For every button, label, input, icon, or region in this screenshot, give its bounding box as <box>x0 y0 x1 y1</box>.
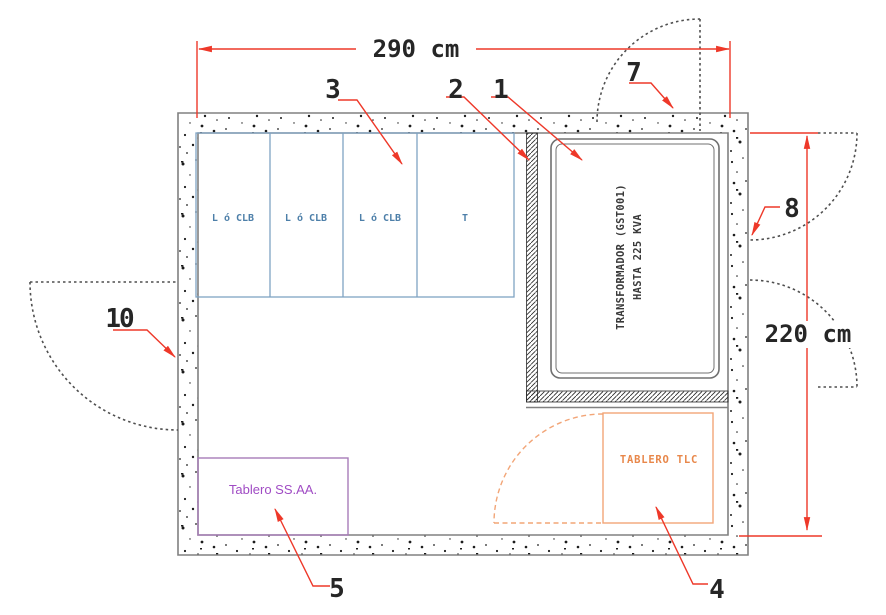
left-door-swing-arc <box>30 282 178 430</box>
callout-1: 1 <box>493 75 508 105</box>
transformer-label-line1: TRANSFORMADOR (GST001) <box>615 184 627 330</box>
hatched-partition-vertical <box>527 133 538 402</box>
transformer-bay: TRANSFORMADOR (GST001) HASTA 225 KVA <box>526 133 728 408</box>
right-door-top-swing-arc <box>750 133 857 240</box>
callout-8: 8 <box>784 194 799 224</box>
leader-10 <box>113 330 175 357</box>
cell-label-1: L ó CLB <box>212 212 254 224</box>
transformer-label-line2: HASTA 225 KVA <box>632 214 644 300</box>
leader-8 <box>752 207 780 235</box>
tlc-door-swing-arc <box>494 414 603 523</box>
dim-width-label: 290 cm <box>373 35 460 63</box>
dim-height-label: 220 cm <box>765 320 852 348</box>
callout-2: 2 <box>448 75 462 105</box>
floor-plan-drawing: L ó CLB L ó CLB L ó CLB T TRANSFORMADOR … <box>0 0 886 615</box>
tablero-ssaa-panel: Tablero SS.AA. <box>198 458 348 535</box>
cell-label-4: T <box>462 213 468 224</box>
callout-3: 3 <box>325 75 339 105</box>
tablero-tlc-panel: TABLERO TLC <box>494 413 713 523</box>
callout-4: 4 <box>709 575 724 605</box>
floor-plan-page: L ó CLB L ó CLB L ó CLB T TRANSFORMADOR … <box>0 0 886 615</box>
callout-10: 10 <box>105 304 134 334</box>
callout-7: 7 <box>626 58 640 88</box>
switchgear-cells: L ó CLB L ó CLB L ó CLB T <box>196 133 514 297</box>
callout-5: 5 <box>329 574 343 604</box>
top-door-swing-arc <box>597 19 700 122</box>
ssaa-label: Tablero SS.AA. <box>229 482 317 497</box>
cell-label-2: L ó CLB <box>285 212 327 224</box>
tlc-outline <box>603 413 713 523</box>
hatched-partition-horizontal <box>527 391 729 402</box>
tlc-label: TABLERO TLC <box>620 454 698 466</box>
cell-label-3: L ó CLB <box>359 212 401 224</box>
